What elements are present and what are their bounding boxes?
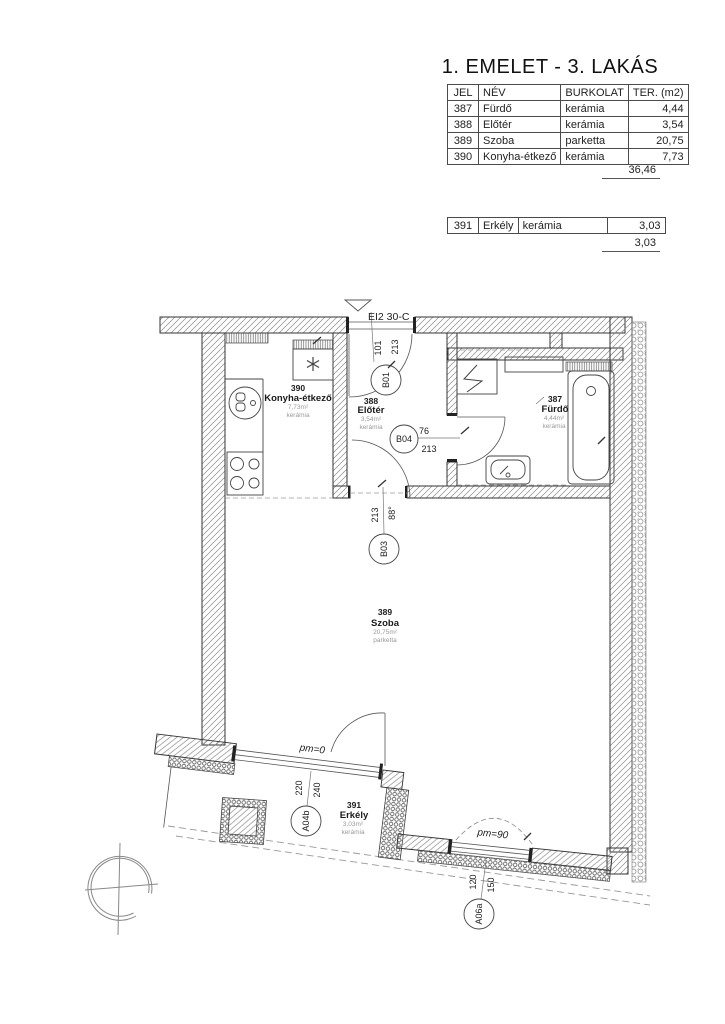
bathroom-sink <box>486 456 530 484</box>
door-b04-swing <box>457 417 505 465</box>
room-label-eloter: 388 Előtér 3,54m² kerámia <box>358 396 385 431</box>
asterisk-symbol <box>307 357 319 371</box>
svg-text:Erkély: Erkély <box>340 810 369 821</box>
washing-machine <box>457 359 497 394</box>
svg-text:parketta: parketta <box>373 637 397 644</box>
svg-text:kerámia: kerámia <box>359 424 383 431</box>
wall-under-bath <box>407 486 610 498</box>
svg-text:Előtér: Előtér <box>358 405 385 416</box>
svg-text:Fürdő: Fürdő <box>542 404 569 415</box>
door-b03-dim2: 88° <box>387 506 397 520</box>
svg-text:kerámia: kerámia <box>341 829 365 836</box>
floor-plan-drawing: pm=0 pm=90 <box>0 0 725 1024</box>
svg-text:390: 390 <box>291 383 305 393</box>
bottom-wall-band: pm=90 <box>396 808 615 881</box>
parapet-label-a06a: pm=90 <box>476 827 509 841</box>
entrance-triangle-icon <box>345 300 371 311</box>
parapet-label-a04b: pm=0 <box>298 742 326 756</box>
door-tag-b03-label: B03 <box>379 541 389 557</box>
svg-text:389: 389 <box>378 607 392 617</box>
wall-top-right <box>415 317 625 333</box>
svg-text:391: 391 <box>347 800 361 810</box>
svg-text:7,73m²: 7,73m² <box>288 404 309 411</box>
svg-text:kerámia: kerámia <box>286 412 310 419</box>
door-b03-dim1: 213 <box>370 507 380 522</box>
door-b04-dim2: 213 <box>421 444 436 454</box>
svg-text:3,03m²: 3,03m² <box>343 821 364 828</box>
north-symbol <box>85 843 158 935</box>
door-a04b-dim2: 240 <box>312 782 322 797</box>
door-a04b-dim1: 220 <box>294 780 304 795</box>
wall-top-left <box>160 317 348 333</box>
svg-text:Szoba: Szoba <box>371 618 400 629</box>
svg-text:Konyha-étkező: Konyha-étkező <box>264 393 332 404</box>
room-labels: 390 Konyha-étkező 7,73m² kerámia 388 Elő… <box>264 383 568 836</box>
entrance-label: EI2 30-C <box>368 311 410 323</box>
stove <box>227 452 263 495</box>
wall-pier <box>550 333 562 348</box>
bathtub <box>568 371 614 484</box>
wall-b03-stub <box>333 486 350 498</box>
door-b04-dim1: 76 <box>419 426 429 436</box>
floor-plan-page: { "title": "1. EMELET - 3. LAKÁS", "area… <box>0 0 725 1024</box>
svg-text:kerámia: kerámia <box>542 423 566 430</box>
door-a04b-swing <box>331 713 385 766</box>
svg-text:3,54m²: 3,54m² <box>361 416 382 423</box>
wall-bath-divider <box>447 333 457 415</box>
entrance-threshold <box>348 322 415 329</box>
room-label-szoba: 389 Szoba 20,75m² parketta <box>371 607 400 644</box>
window-tag-a06a-label: A06a <box>474 903 484 924</box>
door-tag-b01-label: B01 <box>381 372 391 388</box>
door-b01-dim1: 101 <box>373 340 383 355</box>
bathroom-fixtures <box>457 357 614 484</box>
kitchen-fixtures <box>225 349 333 495</box>
window-a06a-dim2: 150 <box>486 877 496 892</box>
balcony-left-edge <box>164 766 172 828</box>
door-tag-b04-label: B04 <box>396 434 412 444</box>
svg-text:387: 387 <box>548 394 562 404</box>
wall-left <box>202 333 225 745</box>
kitchen-sink <box>229 387 261 419</box>
insulation-band-right <box>632 322 646 882</box>
balcony-column <box>220 798 267 845</box>
room-label-konyha: 390 Konyha-étkező 7,73m² kerámia <box>264 383 332 419</box>
room-label-furdo: 387 Fürdő 4,44m² kerámia <box>542 394 569 430</box>
wall-kitchen-divider <box>333 333 347 486</box>
door-tag-a04b-label: A04b <box>301 810 311 831</box>
door-b01-dim2: 213 <box>390 339 400 354</box>
svg-text:4,44m²: 4,44m² <box>544 415 565 422</box>
window-a06a-dim1: 120 <box>468 874 478 889</box>
wall-right <box>610 317 632 852</box>
wall-above-bath <box>448 348 623 360</box>
room-label-erkely: 391 Erkély 3,03m² kerámia <box>340 800 369 836</box>
wall-bath-divider-stub <box>447 462 457 486</box>
entrance-marker: EI2 30-C <box>345 300 410 323</box>
svg-text:20,75m²: 20,75m² <box>373 629 398 636</box>
